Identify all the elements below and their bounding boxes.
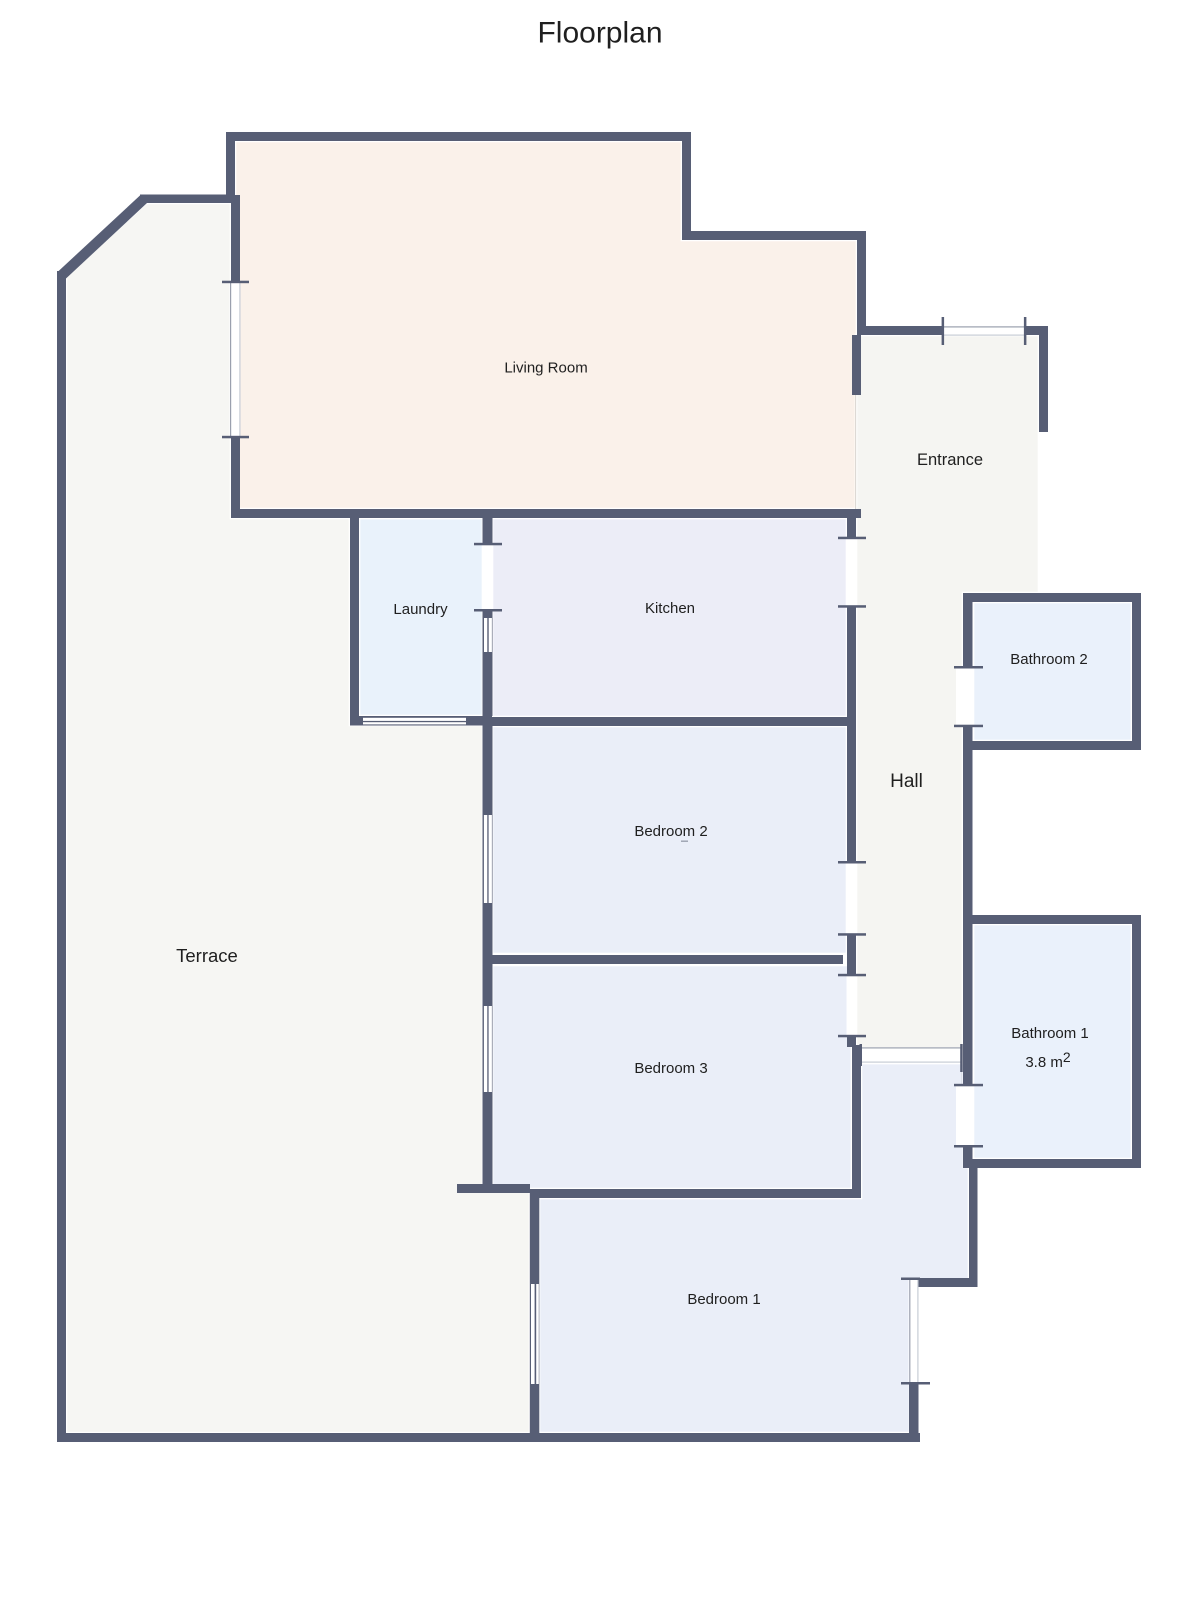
svg-text:Bathroom 1: Bathroom 1 [1011, 1025, 1089, 1042]
svg-text:Laundry: Laundry [393, 601, 448, 618]
svg-text:Terrace: Terrace [176, 945, 238, 966]
svg-text:Entrance: Entrance [917, 451, 983, 469]
svg-text:Living Room: Living Room [504, 360, 587, 377]
svg-text:Bathroom 2: Bathroom 2 [1010, 651, 1088, 668]
svg-text:Bedroom 1: Bedroom 1 [687, 1291, 760, 1308]
svg-text:Bedroom 2: Bedroom 2 [634, 823, 707, 840]
svg-text:Floorplan: Floorplan [537, 17, 662, 50]
svg-text:Hall: Hall [890, 771, 923, 792]
svg-text:Kitchen: Kitchen [645, 600, 695, 617]
svg-text:Bedroom 3: Bedroom 3 [634, 1060, 707, 1077]
